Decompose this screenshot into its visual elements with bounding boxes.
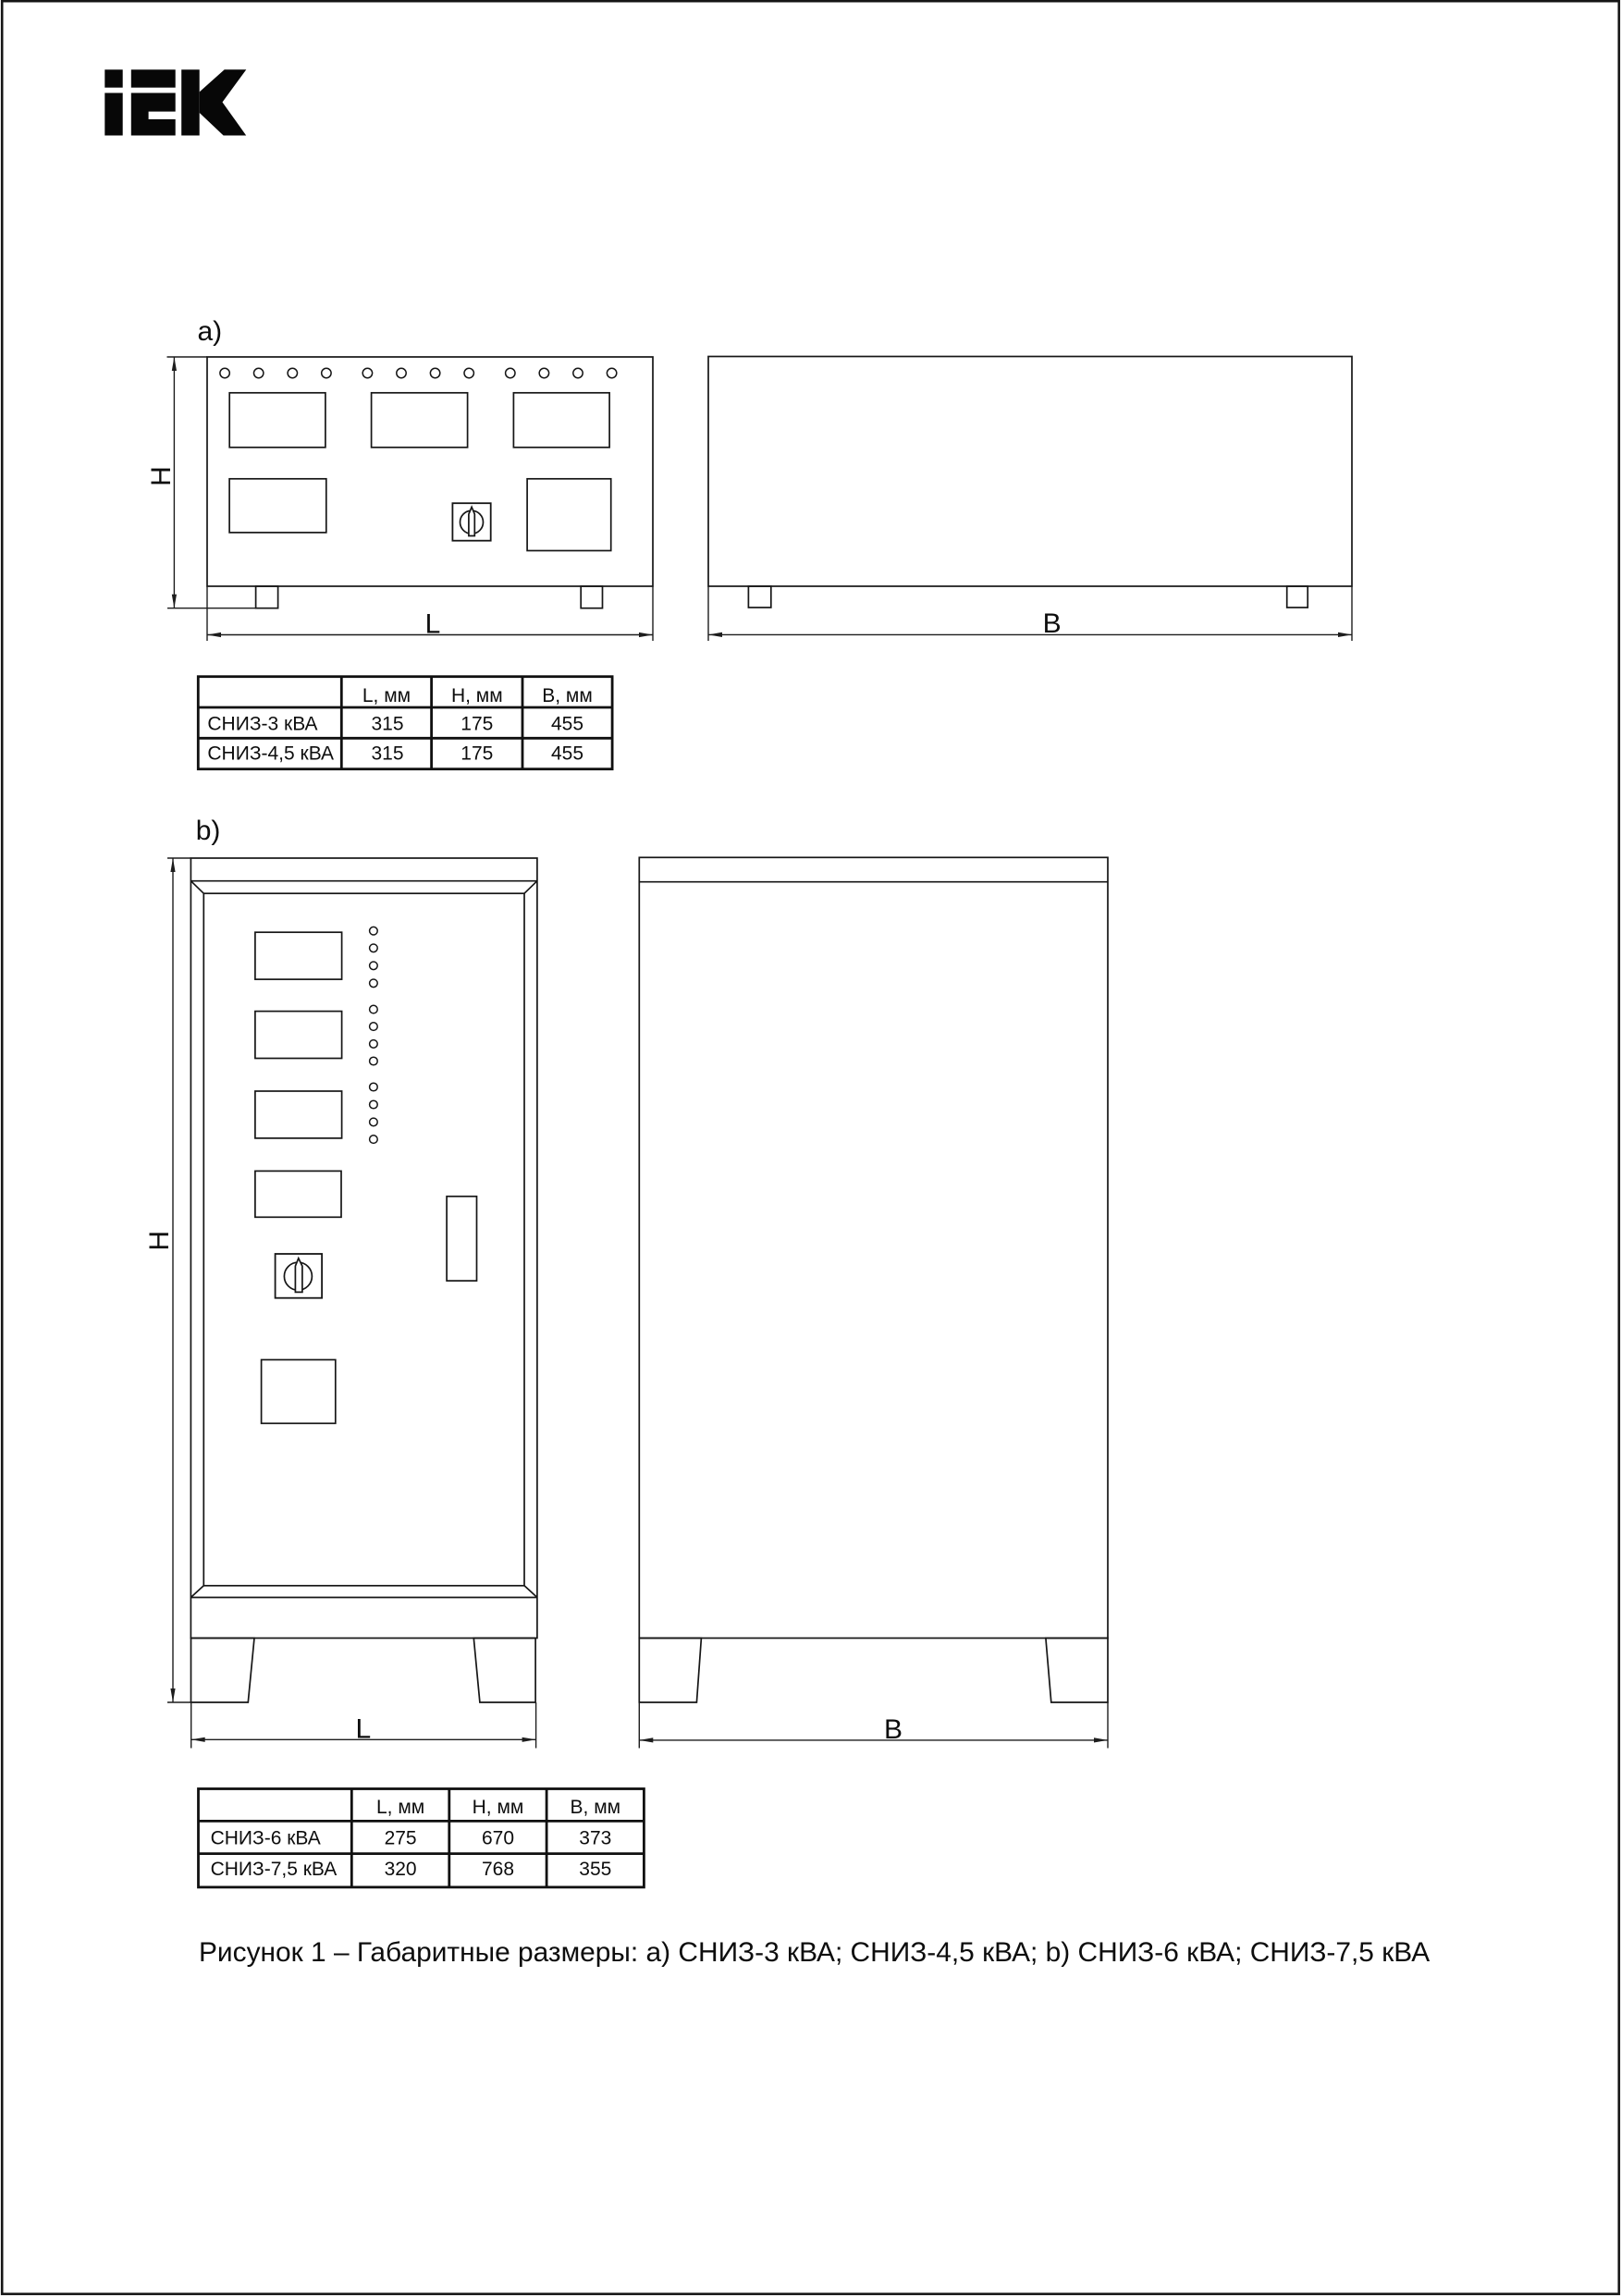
svg-text:B: B — [1043, 608, 1062, 639]
svg-text:H, мм: H, мм — [451, 685, 503, 706]
svg-text:175: 175 — [461, 743, 493, 764]
svg-text:315: 315 — [371, 713, 403, 734]
svg-text:H: H — [144, 1231, 175, 1251]
svg-text:175: 175 — [461, 713, 493, 734]
svg-text:275: 275 — [385, 1828, 417, 1849]
svg-text:L: L — [355, 1713, 371, 1744]
svg-text:L: L — [425, 609, 441, 640]
svg-text:B: B — [884, 1714, 903, 1745]
svg-text:373: 373 — [579, 1828, 611, 1849]
svg-text:B, мм: B, мм — [542, 685, 593, 706]
svg-text:СНИЗ-4,5 кВА: СНИЗ-4,5 кВА — [207, 743, 334, 764]
svg-text:455: 455 — [551, 743, 583, 764]
svg-text:a): a) — [198, 316, 223, 347]
svg-text:355: 355 — [579, 1859, 611, 1880]
svg-text:СНИЗ-6 кВА: СНИЗ-6 кВА — [211, 1828, 321, 1849]
svg-text:СНИЗ-7,5 кВА: СНИЗ-7,5 кВА — [211, 1859, 338, 1880]
svg-text:320: 320 — [385, 1859, 417, 1880]
svg-text:L, мм: L, мм — [376, 1797, 424, 1818]
svg-text:Рисунок 1 – Габаритные размеры: Рисунок 1 – Габаритные размеры: a) СНИЗ-… — [199, 1937, 1430, 1968]
svg-text:L, мм: L, мм — [362, 685, 411, 706]
svg-text:455: 455 — [551, 713, 583, 734]
svg-text:B, мм: B, мм — [571, 1797, 621, 1818]
svg-text:b): b) — [196, 816, 221, 846]
svg-text:670: 670 — [482, 1828, 514, 1849]
svg-text:768: 768 — [482, 1859, 514, 1880]
svg-text:H, мм: H, мм — [473, 1797, 524, 1818]
svg-text:H: H — [146, 466, 177, 486]
svg-text:315: 315 — [371, 743, 403, 764]
svg-text:СНИЗ-3 кВА: СНИЗ-3 кВА — [207, 713, 317, 734]
